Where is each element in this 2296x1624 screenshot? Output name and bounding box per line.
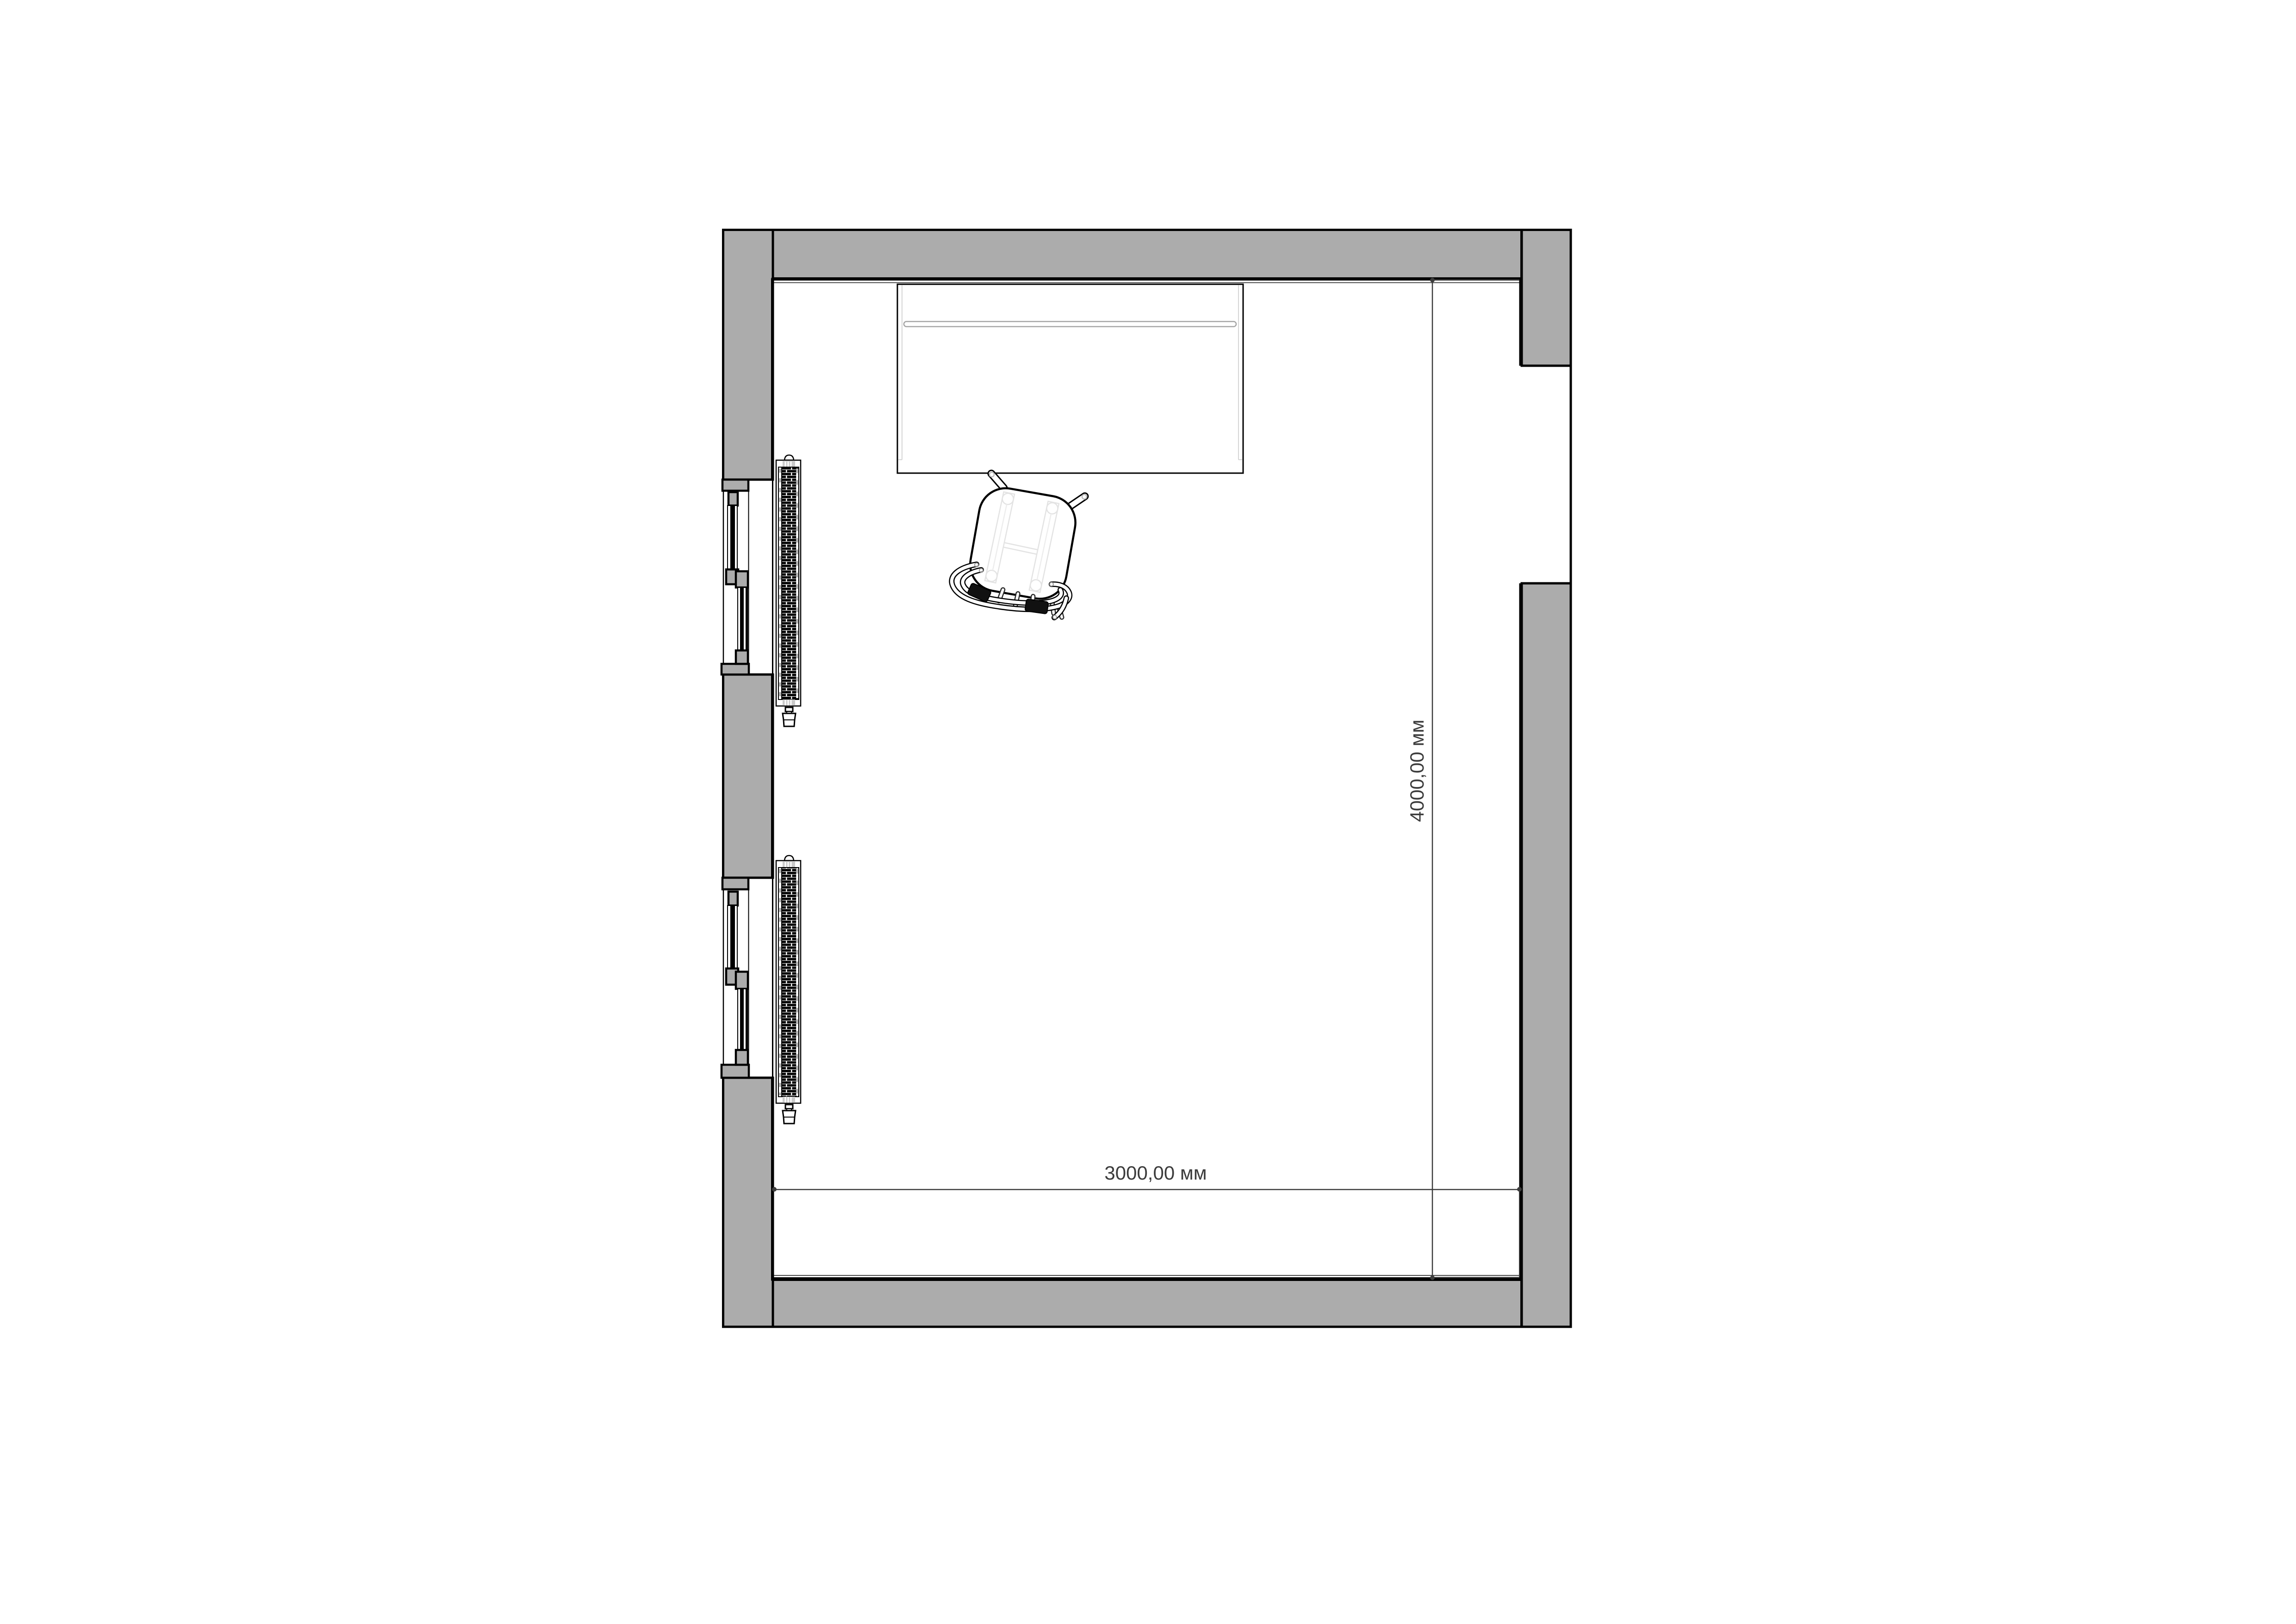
svg-text:3000,00 мм: 3000,00 мм — [1104, 1162, 1207, 1184]
svg-text:4000,00 мм: 4000,00 мм — [1406, 719, 1428, 822]
